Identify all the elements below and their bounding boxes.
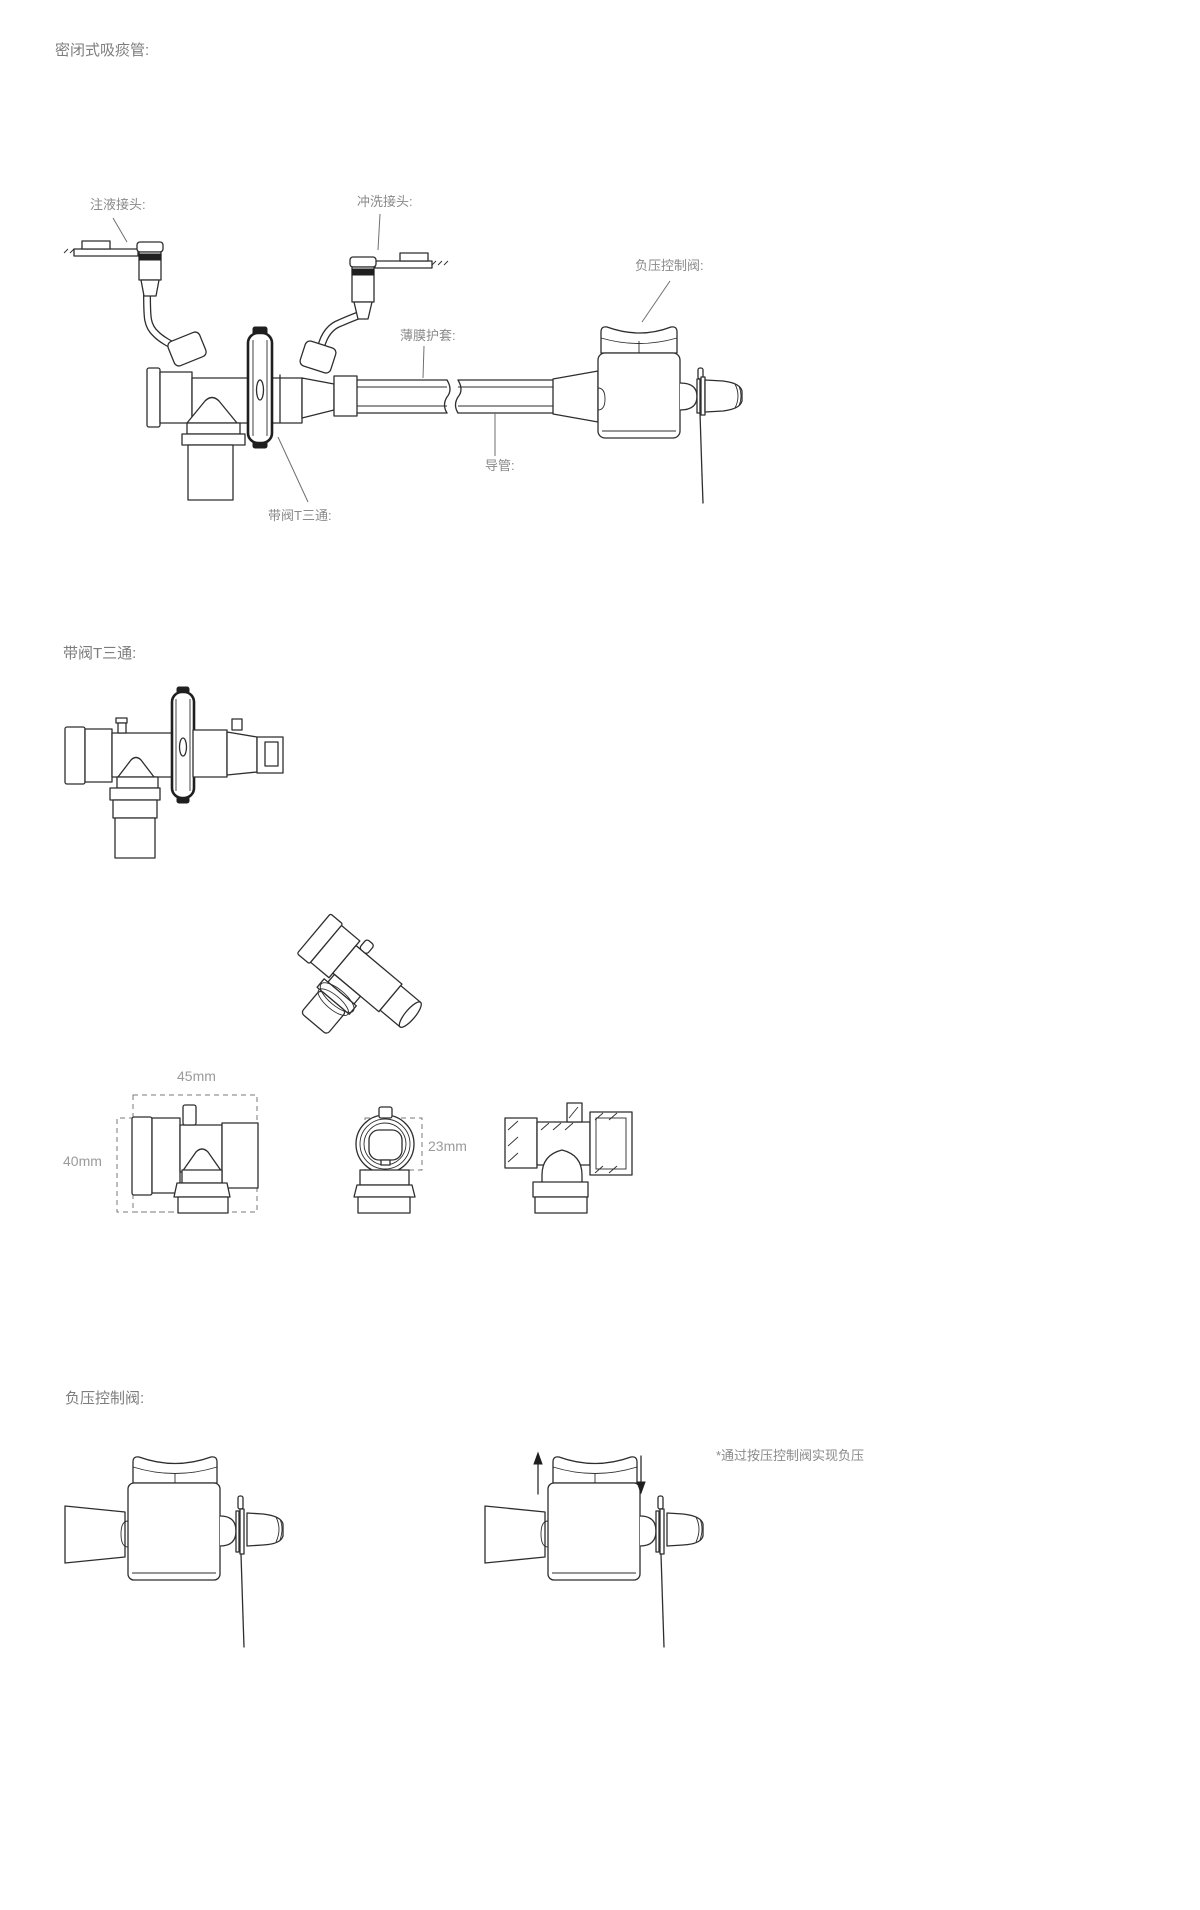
pressure-control-valve [598,327,742,503]
diagram-page: 密闭式吸痰管: [0,0,1200,1910]
catheter-tube [357,371,598,422]
dimension-width: 45mm [177,1068,216,1084]
up-arrow-icon [534,1453,542,1464]
dimension-diameter: 23mm [428,1138,467,1154]
label-t-connector: 带阀T三通: [268,508,332,523]
front-view [132,1105,258,1213]
pressure-valve-detail-views [55,1432,905,1662]
dimension-height: 40mm [63,1153,102,1169]
flush-port-assembly [299,253,448,374]
label-injection-port: 注液接头: [90,197,146,212]
injection-port-assembly [64,241,208,367]
t-connector-section-title: 带阀T三通: [63,645,136,663]
label-flush-port: 冲洗接头: [357,194,413,209]
cross-section-view [505,1103,632,1213]
end-view [354,1107,422,1213]
valve-view-pressed [485,1457,703,1647]
label-pressure-valve: 负压控制阀: [635,258,704,273]
label-catheter: 导管: [485,458,515,473]
valve-section-title: 负压控制阀: [65,1390,144,1408]
valve-press-note: *通过按压控制阀实现负压 [716,1448,864,1463]
valve-view-static [65,1457,283,1647]
t-connector-side-view [55,685,295,875]
thumbwheel-valve [248,327,272,448]
t-connector-isometric-view [290,895,440,1065]
page-title: 密闭式吸痰管: [55,42,149,60]
label-film-sheath: 薄膜护套: [400,328,456,343]
t-connector-dimension-views [55,1060,655,1230]
